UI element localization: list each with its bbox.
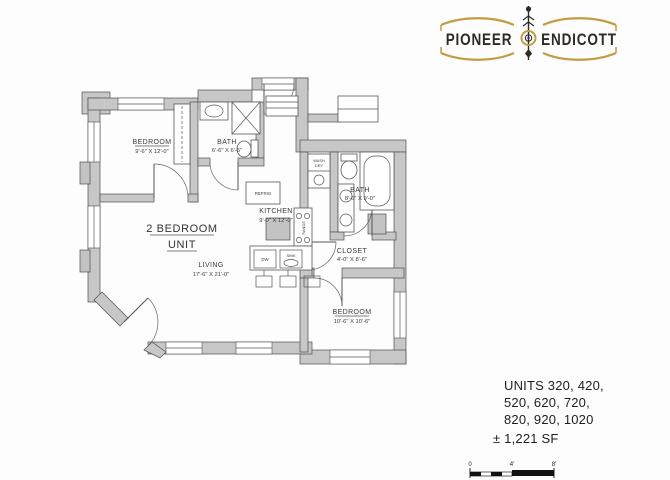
wall-rightwing-top xyxy=(300,140,406,152)
room-label-bedroom1: BEDROOM xyxy=(133,139,172,146)
logo-word-endicott: ENDICOTT xyxy=(541,31,617,50)
room-dims-bedroom2: 10'-6" X 10'-6" xyxy=(334,319,371,325)
door-bedroom2 xyxy=(314,278,342,306)
door-bedroom1 xyxy=(154,164,188,198)
dryer-label: DRY xyxy=(315,163,324,168)
wall-bath1-south xyxy=(198,158,210,166)
room-dims-living: 17'-6" X 21'-0" xyxy=(193,272,230,278)
room-label-bedroom2: BEDROOM xyxy=(333,309,372,316)
wall-bedroom1-east xyxy=(190,102,198,202)
units-line1: UNITS 320, 420, xyxy=(504,378,604,393)
scale-segment-black xyxy=(491,472,502,476)
door-corner xyxy=(148,298,158,346)
logo-word-pioneer: PIONEER xyxy=(446,31,513,50)
scale-tick-0: 0 xyxy=(468,462,472,468)
area-label: ± 1,221 SF xyxy=(493,431,559,446)
room-dims-closet: 4'-0" X 8'-6" xyxy=(337,257,367,263)
entry-closet xyxy=(266,96,298,116)
wall-diagonal-upper xyxy=(94,292,128,326)
scale-tick-4: 4' xyxy=(510,462,514,468)
stool-icon xyxy=(256,276,272,287)
door-bath1 xyxy=(210,162,238,190)
units-line3: 820, 920, 1020 xyxy=(504,412,594,427)
scale-segment-black xyxy=(470,472,481,476)
laundry-fixtures: WASH DRY xyxy=(308,154,330,188)
room-label-living: LIVING xyxy=(198,262,223,269)
toilet-tank-icon xyxy=(341,154,357,161)
pilaster xyxy=(80,162,90,184)
floorplan-drawing: PIONEER ENDICOTT xyxy=(0,0,670,480)
scale-bar: 0 4' 8' xyxy=(468,462,556,478)
unit-title-line2: UNIT xyxy=(168,239,196,251)
floorplan-page: PIONEER ENDICOTT xyxy=(0,0,670,480)
toilet-tank-icon xyxy=(251,140,258,157)
room-label-kitchen: KITCHEN xyxy=(259,208,293,215)
wall-bath1-top xyxy=(198,90,252,102)
refrigerator-label: REFRIG xyxy=(255,191,272,196)
room-label-bath1: BATH xyxy=(217,139,237,146)
sink-label: SINK xyxy=(286,253,295,258)
wall-bedroom1-south xyxy=(100,194,154,202)
scale-segment-long xyxy=(512,470,554,476)
unit-title-line1: 2 BEDROOM xyxy=(146,223,217,235)
scale-tick-8: 8' xyxy=(552,462,556,468)
wall-bath1-south xyxy=(238,158,264,166)
pioneer-endicott-logo: PIONEER ENDICOTT xyxy=(441,6,617,60)
wall-bath2-west xyxy=(330,152,338,232)
logo-emblem-icon xyxy=(522,6,536,60)
wall-shaft-stub xyxy=(308,114,340,122)
wall-bedroom1-south-stub xyxy=(188,194,198,202)
toilet-bowl-icon xyxy=(341,161,357,179)
range-label: RANGE xyxy=(301,221,306,235)
dishwasher-label: DW xyxy=(261,257,269,262)
units-line2: 520, 620, 720, xyxy=(504,395,590,410)
stool-icon xyxy=(280,276,296,287)
room-dims-bedroom1: 9'-6" X 12'-0" xyxy=(135,149,168,155)
wall-bath2-south xyxy=(330,232,344,240)
wall-bedroom2-north xyxy=(342,268,404,278)
room-label-bath2: BATH xyxy=(350,187,370,194)
room-label-closet: CLOSET xyxy=(337,248,368,255)
bedroom1-closet xyxy=(174,104,190,164)
room-dims-bath1: 6'-6" X 6'-6" xyxy=(212,148,242,154)
pilaster xyxy=(80,250,90,272)
kitchen-counter xyxy=(250,246,312,270)
unit-info: UNITS 320, 420, 520, 620, 720, 820, 920,… xyxy=(493,378,604,446)
closet-shelf xyxy=(266,96,298,116)
room-dims-bath2: 8'-6" X 9'-0" xyxy=(345,196,375,202)
wall-bedroom2-west xyxy=(300,278,308,352)
room-dims-kitchen: 9'-0" X 12'-0" xyxy=(259,218,292,224)
